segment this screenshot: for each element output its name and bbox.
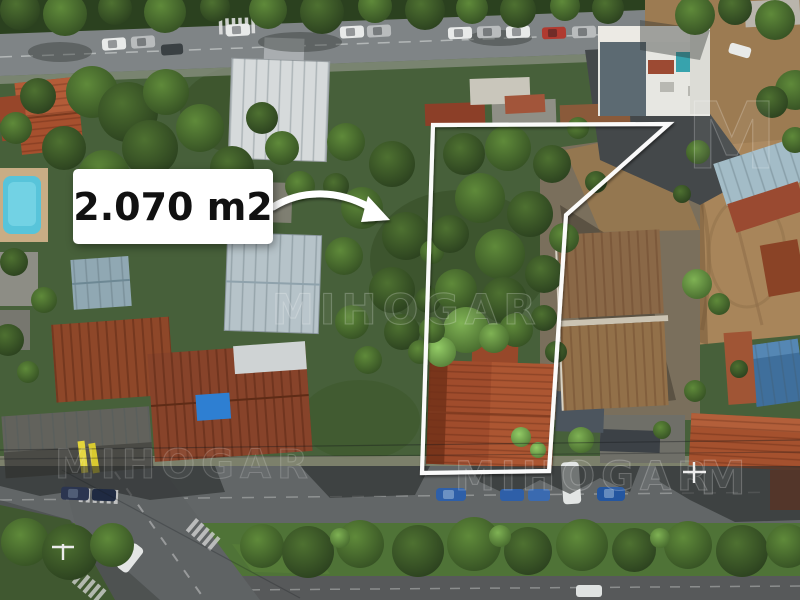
watermark-monogram-bottom-right: M xyxy=(700,451,752,505)
watermark-text-bottom: MIHOGAR xyxy=(455,454,714,500)
watermark-text-center: MIHOGAR xyxy=(272,285,542,334)
swimming-pool xyxy=(0,168,48,242)
aerial-photo-canvas: MIHOGAR MIHOGAR MIHOGAR M M xyxy=(0,0,800,600)
area-size-label: 2.070 m2 xyxy=(73,169,273,244)
watermark-monogram-top-right: M xyxy=(686,83,784,190)
aerial-listing-photo: MIHOGAR MIHOGAR MIHOGAR M M 2.070 m2 xyxy=(0,0,800,600)
watermark-text-bottom-left: MIHOGAR xyxy=(55,442,314,488)
